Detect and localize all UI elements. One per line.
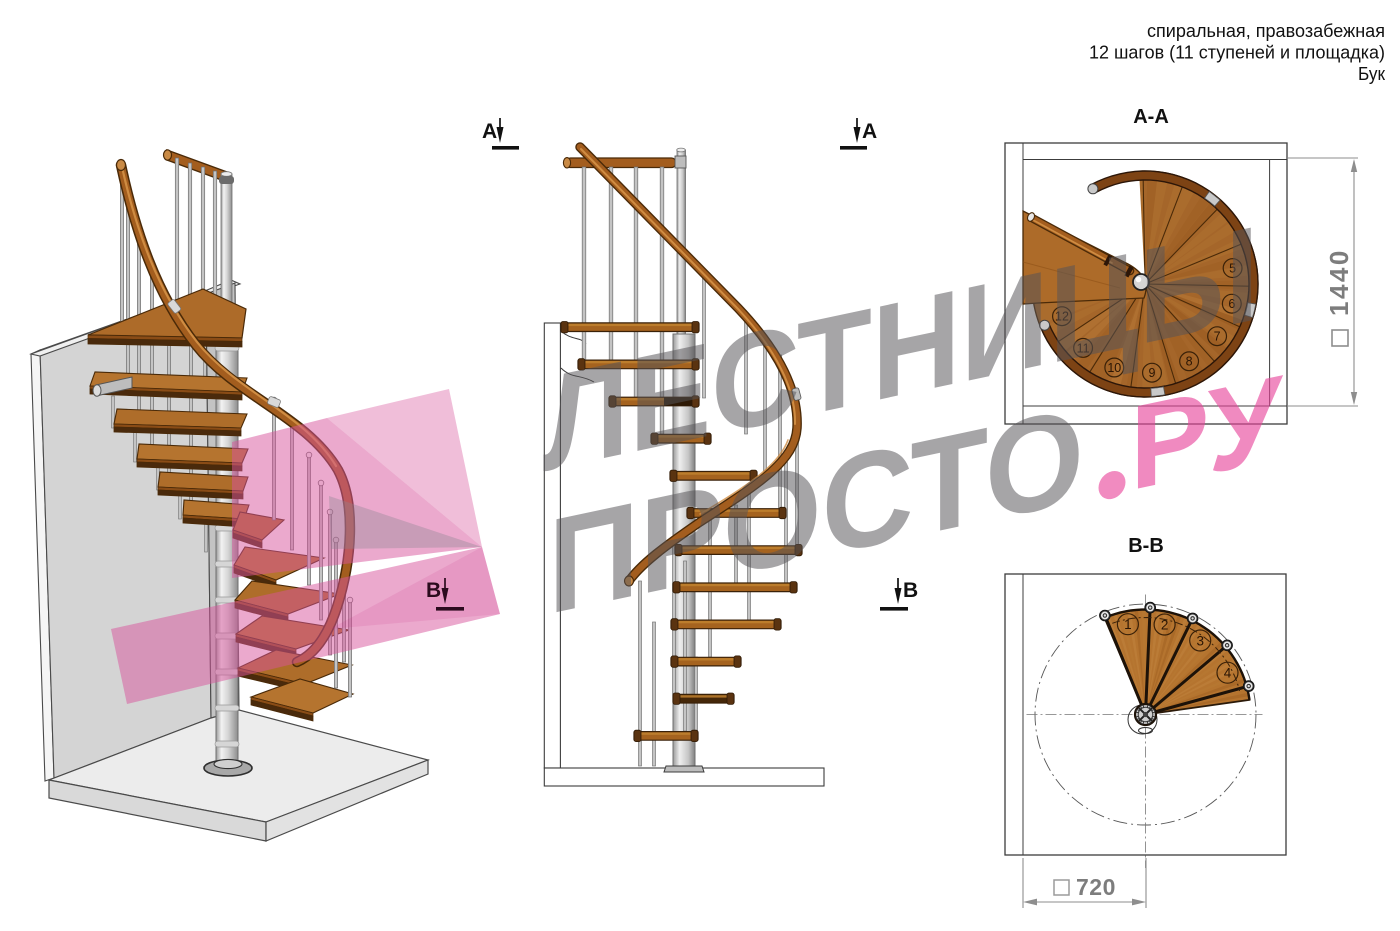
svg-text:А-А: А-А — [1133, 106, 1169, 128]
svg-text:3: 3 — [1196, 633, 1204, 648]
svg-text:1: 1 — [1124, 617, 1132, 632]
svg-text:A: A — [862, 120, 877, 143]
svg-text:720: 720 — [1076, 874, 1116, 900]
svg-text:4: 4 — [1224, 666, 1232, 681]
svg-text:В-В: В-В — [1128, 535, 1164, 557]
svg-text:1440: 1440 — [1324, 248, 1354, 316]
svg-text:A: A — [482, 120, 497, 143]
svg-text:B: B — [903, 579, 918, 602]
svg-text:спиральная, правозабежная: спиральная, правозабежная — [1147, 21, 1385, 41]
svg-text:12 шагов (11 ступеней и площад: 12 шагов (11 ступеней и площадка) — [1089, 43, 1385, 63]
svg-text:B: B — [426, 579, 441, 602]
svg-text:2: 2 — [1161, 617, 1169, 632]
svg-text:Бук: Бук — [1358, 64, 1385, 84]
